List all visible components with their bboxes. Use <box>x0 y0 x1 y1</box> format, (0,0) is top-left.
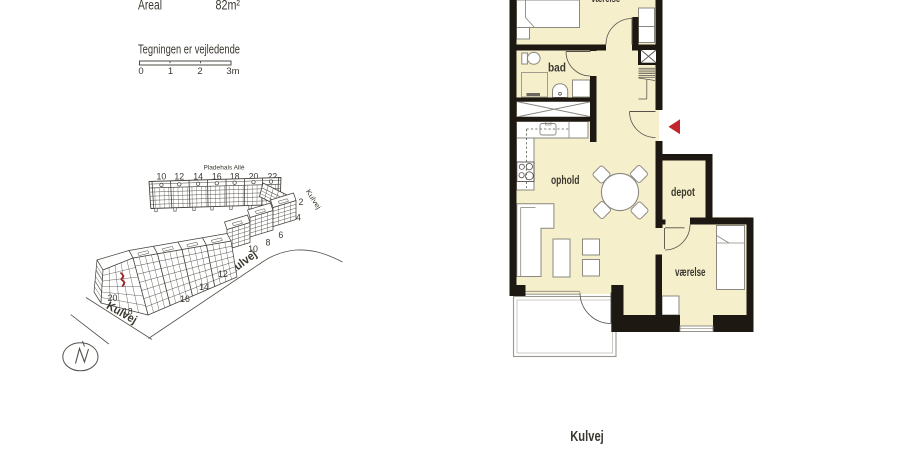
svg-text:10: 10 <box>157 172 167 182</box>
svg-text:1: 1 <box>168 66 173 77</box>
svg-text:12: 12 <box>218 269 228 279</box>
svg-text:2: 2 <box>197 66 202 77</box>
svg-text:82m²: 82m² <box>216 0 241 13</box>
svg-text:ophold: ophold <box>551 175 580 187</box>
svg-text:Kulvej: Kulvej <box>570 428 604 445</box>
svg-text:6: 6 <box>278 230 283 240</box>
svg-text:bad: bad <box>548 63 566 75</box>
svg-text:værelse: værelse <box>675 267 706 279</box>
svg-text:2: 2 <box>299 197 304 207</box>
svg-text:værelse: værelse <box>591 0 620 5</box>
svg-text:depot: depot <box>671 187 695 199</box>
svg-text:Pladehals Allé: Pladehals Allé <box>204 165 246 172</box>
svg-text:8: 8 <box>266 238 271 248</box>
svg-text:0: 0 <box>138 66 143 77</box>
svg-text:Tegningen er vejledende: Tegningen er vejledende <box>138 42 240 57</box>
svg-text:4: 4 <box>296 213 301 223</box>
svg-text:16: 16 <box>180 294 190 304</box>
svg-text:3m: 3m <box>226 66 239 77</box>
svg-text:14: 14 <box>199 282 209 292</box>
svg-text:Areal: Areal <box>138 0 162 13</box>
